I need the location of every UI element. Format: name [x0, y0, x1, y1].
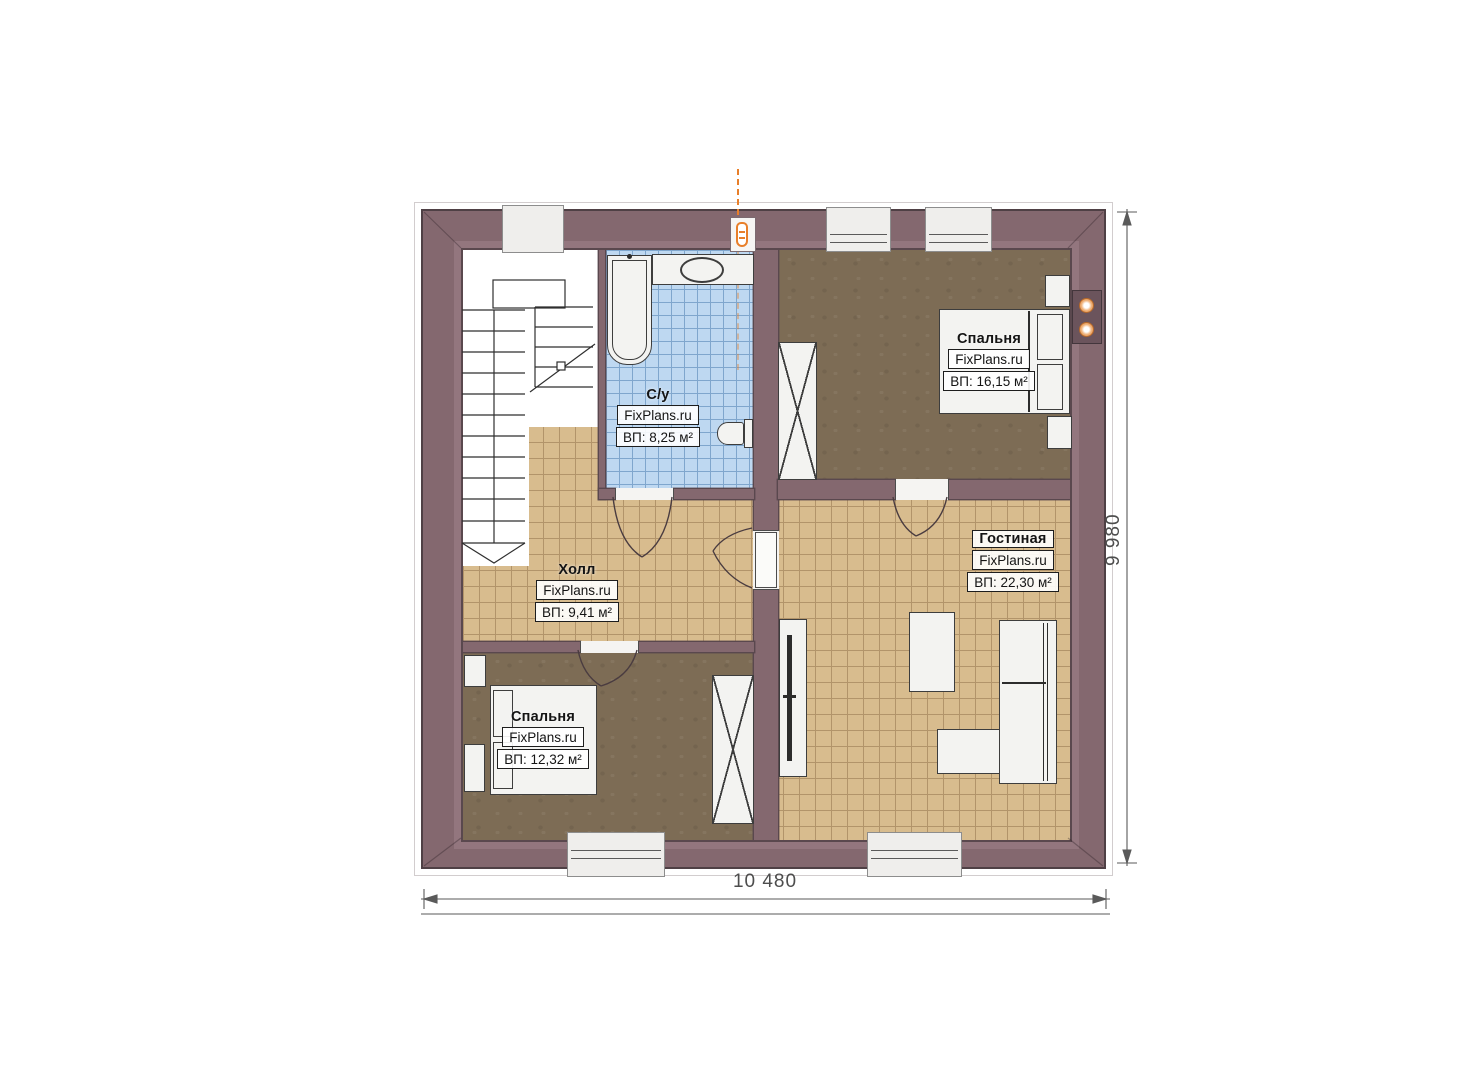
coffee-table	[909, 612, 955, 692]
bedroom-bottom-top-wall-right	[639, 642, 754, 652]
bedroom-top-door-opening	[895, 479, 949, 500]
flue-vent-circle-2	[1079, 322, 1094, 337]
bathroom-left-wall	[599, 250, 605, 499]
watermark: FixPlans.ru	[972, 550, 1054, 570]
room-name: Холл	[558, 562, 595, 578]
room-label-hall: Холл FixPlans.ru ВП: 9,41 м²	[517, 562, 637, 622]
window-glazing	[871, 850, 958, 859]
bathroom-sink	[680, 257, 724, 283]
bathtub	[607, 255, 652, 365]
boiler-flame-icon	[736, 222, 748, 247]
room-name: Гостиная	[972, 530, 1053, 548]
tv-stand	[779, 619, 807, 777]
window-glazing	[830, 234, 887, 243]
building-outline: С/у FixPlans.ru ВП: 8,25 м² Спальня FixP…	[421, 209, 1106, 869]
bedroom-bottom-top-wall-left	[463, 642, 580, 652]
window-bedroom-top-2	[925, 207, 992, 252]
window-glazing	[571, 850, 661, 859]
toilet-tank	[744, 419, 753, 448]
window-bedroom-bottom	[567, 832, 665, 877]
nightstand	[1047, 416, 1072, 449]
room-label-bedroom-bottom: Спальня FixPlans.ru ВП: 12,32 м²	[483, 709, 603, 769]
tv-screen	[787, 635, 792, 761]
room-area: ВП: 8,25 м²	[616, 427, 700, 447]
wardrobe-bedroom-bottom	[712, 675, 754, 824]
nightstand	[464, 655, 486, 687]
room-label-bathroom: С/у FixPlans.ru ВП: 8,25 м²	[598, 387, 718, 447]
room-label-bedroom-top: Спальня FixPlans.ru ВП: 16,15 м²	[929, 331, 1049, 391]
partition-main-vertical-lower	[754, 590, 778, 840]
hall-living-door-leaf	[755, 532, 777, 588]
chimney-flue-dashed-line	[737, 169, 739, 215]
partition-bedroom-living-left	[778, 480, 895, 499]
bathroom-bottom-wall-left	[599, 489, 615, 499]
stair-flight-floor	[463, 427, 529, 566]
partition-main-vertical-upper	[754, 250, 778, 530]
watermark: FixPlans.ru	[536, 580, 618, 600]
sofa-main	[999, 620, 1057, 784]
room-area: ВП: 16,15 м²	[943, 371, 1035, 391]
window-stairs-top	[502, 205, 564, 253]
bathroom-door-opening	[615, 488, 674, 500]
bathroom-bottom-wall-right	[674, 489, 754, 499]
flue-vent-circle-1	[1079, 298, 1094, 313]
watermark: FixPlans.ru	[502, 727, 584, 747]
tv-mount	[783, 695, 796, 698]
room-label-living-room: Гостиная FixPlans.ru ВП: 22,30 м²	[953, 530, 1073, 592]
wardrobe-bedroom-top	[778, 342, 817, 480]
room-area: ВП: 12,32 м²	[497, 749, 589, 769]
floor-plan-page: { "watermark": "FixPlans.ru", "rooms": {…	[0, 0, 1473, 1080]
dimension-height-label: 9 980	[1103, 485, 1125, 595]
room-name: Спальня	[511, 709, 575, 725]
toilet	[717, 422, 744, 445]
room-area: ВП: 9,41 м²	[535, 602, 619, 622]
dimension-width-label: 10 480	[700, 871, 830, 893]
room-name: С/у	[646, 387, 669, 403]
partition-bedroom-living-right	[949, 480, 1070, 499]
watermark: FixPlans.ru	[617, 405, 699, 425]
nightstand	[1045, 275, 1070, 307]
nightstand	[464, 744, 485, 792]
sofa-chaise	[937, 729, 1001, 774]
window-glazing	[929, 234, 988, 243]
bedroom-bottom-door-opening	[580, 641, 639, 653]
window-living-bottom	[867, 832, 962, 877]
stair-area-floor	[463, 250, 599, 427]
watermark: FixPlans.ru	[948, 349, 1030, 369]
room-name: Спальня	[957, 331, 1021, 347]
window-bedroom-top-1	[826, 207, 891, 252]
room-area: ВП: 22,30 м²	[967, 572, 1059, 592]
